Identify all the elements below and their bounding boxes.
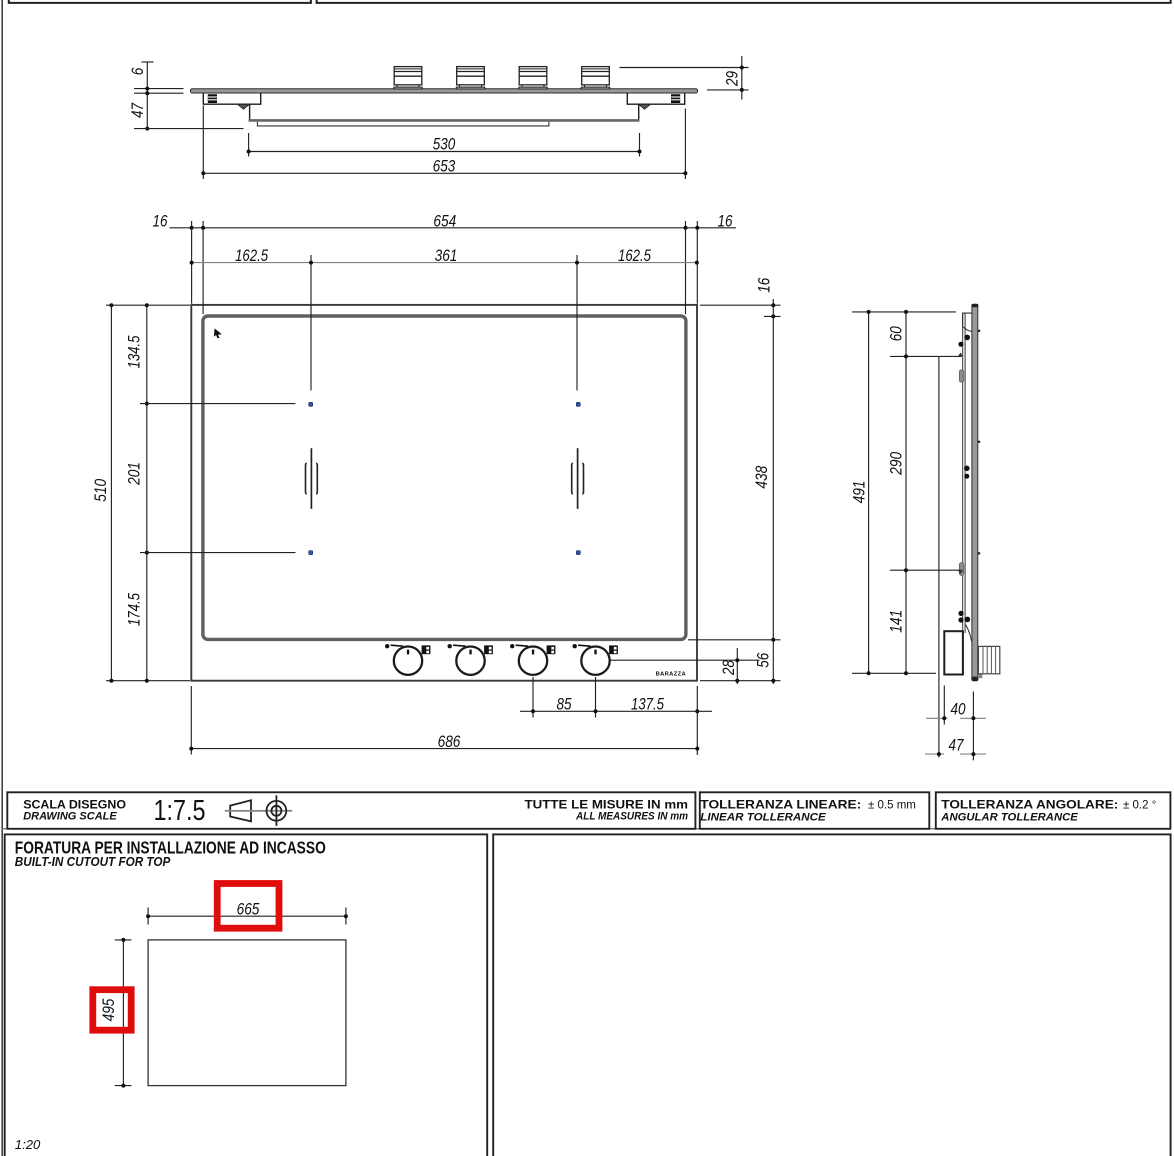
svg-text:653: 653 <box>433 157 456 176</box>
svg-text:29: 29 <box>723 71 742 87</box>
svg-text:1:20: 1:20 <box>15 1137 41 1152</box>
svg-text:BARAZZA: BARAZZA <box>656 672 687 678</box>
svg-text:665: 665 <box>237 900 260 919</box>
svg-text:530: 530 <box>433 135 456 154</box>
svg-text:± 0.2 °: ± 0.2 ° <box>1123 800 1156 812</box>
svg-text:510: 510 <box>91 478 110 501</box>
svg-text:16: 16 <box>718 211 734 230</box>
svg-text:60: 60 <box>887 326 906 342</box>
svg-text:± 0.5 mm: ± 0.5 mm <box>868 800 916 812</box>
svg-text:BUILT-IN CUTOUT FOR TOP: BUILT-IN CUTOUT FOR TOP <box>15 855 171 869</box>
svg-text:495: 495 <box>99 998 118 1021</box>
svg-text:SCALA DISEGNO: SCALA DISEGNO <box>23 798 126 812</box>
svg-text:491: 491 <box>850 481 869 504</box>
svg-text:1:7.5: 1:7.5 <box>154 795 206 827</box>
svg-text:TOLLERANZA ANGOLARE:: TOLLERANZA ANGOLARE: <box>941 798 1118 812</box>
svg-text:TOLLERANZA LINEARE:: TOLLERANZA LINEARE: <box>700 798 861 812</box>
svg-text:162.5: 162.5 <box>618 246 652 265</box>
svg-text:LINEAR TOLLERANCE: LINEAR TOLLERANCE <box>700 812 826 824</box>
svg-text:16: 16 <box>153 211 169 230</box>
svg-text:162.5: 162.5 <box>235 246 269 265</box>
svg-text:438: 438 <box>752 465 771 488</box>
svg-text:47: 47 <box>949 735 965 754</box>
svg-text:174.5: 174.5 <box>125 592 144 626</box>
svg-text:137.5: 137.5 <box>631 695 665 714</box>
svg-text:6: 6 <box>128 67 147 75</box>
svg-text:361: 361 <box>435 246 458 265</box>
svg-text:134.5: 134.5 <box>125 335 144 369</box>
svg-text:290: 290 <box>887 451 906 475</box>
svg-text:141: 141 <box>887 610 906 633</box>
svg-text:DRAWING SCALE: DRAWING SCALE <box>23 811 117 823</box>
svg-text:ANGULAR TOLLERANCE: ANGULAR TOLLERANCE <box>940 812 1078 824</box>
svg-text:654: 654 <box>433 211 456 230</box>
svg-text:40: 40 <box>951 700 967 719</box>
svg-text:28: 28 <box>719 659 738 675</box>
svg-text:TUTTE LE MISURE IN mm: TUTTE LE MISURE IN mm <box>525 798 689 812</box>
svg-text:686: 686 <box>438 732 461 751</box>
svg-text:ALL MEASURES IN mm: ALL MEASURES IN mm <box>575 811 688 823</box>
svg-text:47: 47 <box>128 102 147 118</box>
svg-text:85: 85 <box>557 695 573 714</box>
svg-text:16: 16 <box>755 277 774 293</box>
svg-text:201: 201 <box>125 462 144 486</box>
